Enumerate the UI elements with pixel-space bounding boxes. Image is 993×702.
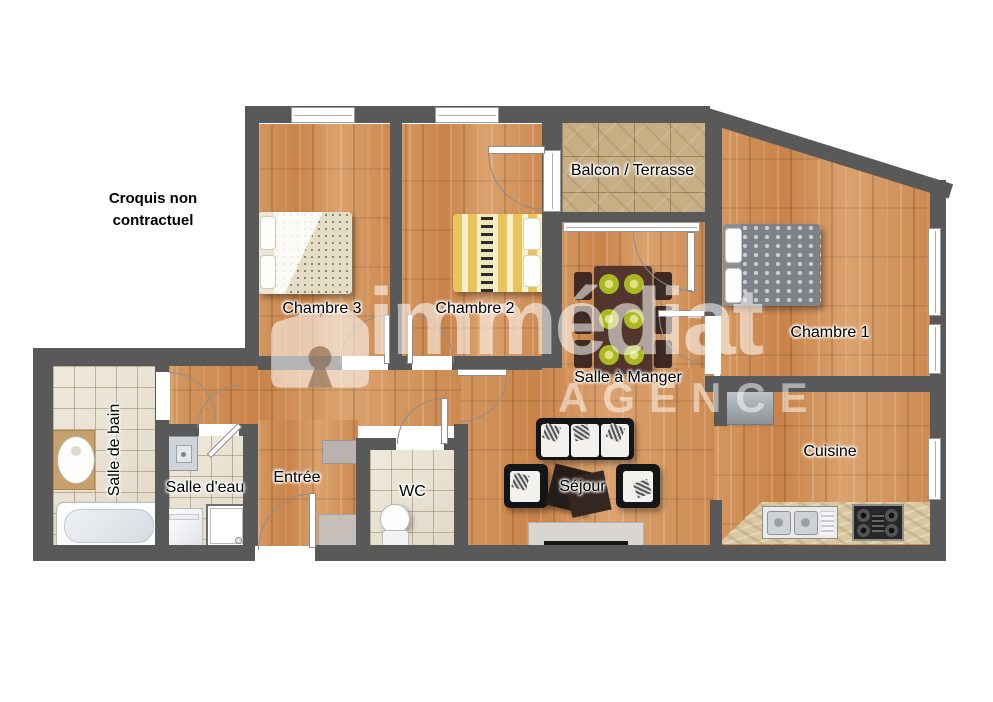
bed-icon-chambre1 xyxy=(723,224,821,306)
window-chambre2-balcony xyxy=(543,150,561,212)
door-opening xyxy=(156,372,170,420)
room-label-chambre3: Chambre 3 xyxy=(267,300,377,318)
window xyxy=(928,228,941,316)
dining-chair-icon xyxy=(574,306,592,334)
dining-table-icon xyxy=(594,266,652,374)
wall xyxy=(157,424,199,436)
sofa-icon xyxy=(536,418,634,460)
bathroom-sink-icon xyxy=(57,436,95,484)
disclaimer-line1: Croquis non xyxy=(78,188,228,210)
wall xyxy=(356,438,396,450)
room-label-sejour: Séjour xyxy=(540,478,625,496)
disclaimer-line2: contractuel xyxy=(78,210,228,232)
bed-icon-chambre2 xyxy=(453,214,545,292)
door-panel xyxy=(658,310,705,317)
room-label-entree: Entrée xyxy=(253,469,341,487)
dining-chair-icon xyxy=(574,340,592,368)
window xyxy=(291,107,355,123)
window xyxy=(435,107,499,123)
room-label-cuisine: Cuisine xyxy=(780,443,880,461)
window-balcony-door xyxy=(563,222,700,232)
fridge-icon xyxy=(724,388,774,425)
wall xyxy=(33,348,53,561)
room-label-salle-a-manger: Salle à Manger xyxy=(553,369,703,387)
washbasin-icon xyxy=(168,436,198,471)
room-label-chambre1: Chambre 1 xyxy=(775,324,885,342)
room-label-chambre2: Chambre 2 xyxy=(420,300,530,318)
wall xyxy=(705,112,722,316)
room-label-salle-eau: Salle d'eau xyxy=(155,479,255,497)
floor-plan: immédiat AGENCE Croquis non contractuel … xyxy=(0,0,993,702)
wall xyxy=(452,356,542,370)
dining-chair-icon xyxy=(574,272,592,300)
stove-icon xyxy=(852,504,904,541)
shower-icon xyxy=(206,504,248,549)
wall xyxy=(705,376,946,392)
wall xyxy=(33,545,255,561)
wall xyxy=(714,376,727,426)
wall xyxy=(710,500,722,550)
room-label-balcon: Balcon / Terrasse xyxy=(560,162,705,180)
wall xyxy=(258,356,342,370)
room-label-wc: WC xyxy=(385,483,440,501)
toilet-icon xyxy=(378,504,414,550)
wall xyxy=(315,545,946,561)
bed-icon-chambre3 xyxy=(258,212,352,294)
door-opening xyxy=(705,316,721,374)
washing-machine-icon xyxy=(165,508,203,548)
wall xyxy=(542,106,562,368)
wall xyxy=(245,106,259,366)
window xyxy=(928,324,941,374)
door-panel xyxy=(457,369,507,376)
wall xyxy=(562,212,710,222)
room-label-salle-de-bain: Salle de bain xyxy=(106,380,126,520)
kitchen-sink-icon xyxy=(762,506,838,539)
wall xyxy=(356,438,370,547)
disclaimer-note: Croquis non contractuel xyxy=(78,188,228,232)
window xyxy=(928,438,941,500)
wall xyxy=(454,424,468,547)
wall xyxy=(390,106,402,366)
wall xyxy=(33,348,258,366)
